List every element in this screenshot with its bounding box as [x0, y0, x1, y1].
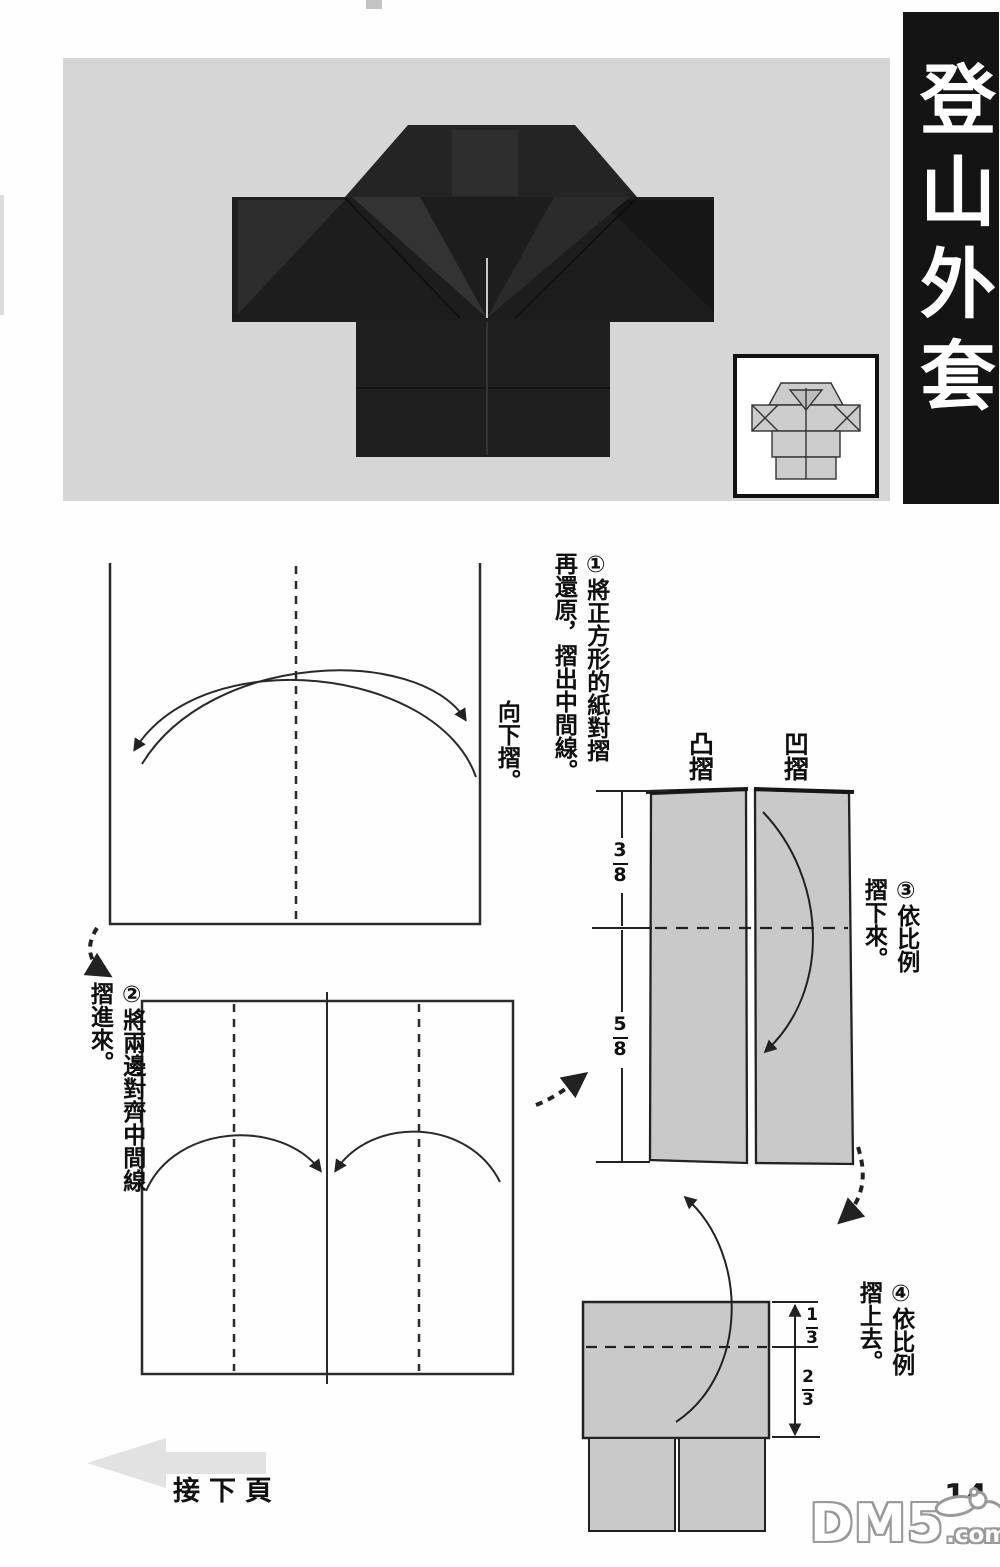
step2-instruction: ②將兩邊對齊中間線 摺進來。 — [82, 982, 149, 1247]
scan-artifact — [366, 0, 382, 9]
watermark-logo: DM5 .com — [810, 1498, 1000, 1550]
watermark-suffix: .com — [946, 1524, 1000, 1547]
watermark-brand: DM5 — [810, 1498, 944, 1550]
fold-arc-right — [142, 670, 465, 764]
fold-arc-left — [135, 680, 476, 777]
step4-text-main: ④依比例 — [885, 1281, 915, 1451]
next-page-label: 接下頁 — [173, 1469, 281, 1508]
step1-instruction: ①將正方形的紙對摺 再還原，摺出中間線。 — [546, 552, 613, 852]
step1-text-main: ①將正方形的紙對摺 — [580, 552, 610, 852]
transition-arrow-step1-to-step2 — [90, 928, 107, 974]
step3-text-main: ③依比例 — [890, 878, 920, 1038]
page-title: 登山外套 — [913, 12, 989, 504]
fraction-2-3: 2 3 — [795, 1368, 821, 1410]
step4-instruction: ④依比例 摺上去。 — [851, 1281, 918, 1451]
step2-text-main: ②將兩邊對齊中間線 — [116, 982, 146, 1247]
step1-diagram — [110, 563, 480, 924]
title-banner: 登山外套 — [903, 12, 999, 504]
mountain-fold-label: 凸摺 — [686, 731, 714, 781]
step1-text-continued: 再還原，摺出中間線。 — [548, 552, 578, 852]
step3-text-continued: 摺下來。 — [858, 878, 888, 1038]
inset-preview-box — [735, 356, 877, 496]
jacket-photo — [232, 125, 714, 457]
valley-fold-label: 凹摺 — [781, 731, 809, 781]
fraction-3-8: 3 8 — [604, 840, 636, 887]
step3-instruction: ③依比例 摺下來。 — [856, 878, 923, 1038]
fraction-1-3: 1 3 — [799, 1306, 825, 1348]
mouse-icon — [928, 1480, 1000, 1520]
step2-text-continued: 摺進來。 — [84, 982, 114, 1247]
step4-text-continued: 摺上去。 — [853, 1281, 883, 1451]
scanned-origami-page: 登山外套 — [0, 0, 1000, 1567]
step2-diagram — [142, 992, 513, 1384]
transition-arrow-step2-to-step3 — [536, 1076, 583, 1105]
step4-diagram — [583, 1198, 820, 1531]
scan-artifact — [0, 195, 4, 315]
fraction-5-8: 5 8 — [604, 1014, 636, 1061]
step1-side-note: 向下摺。 — [489, 700, 523, 830]
